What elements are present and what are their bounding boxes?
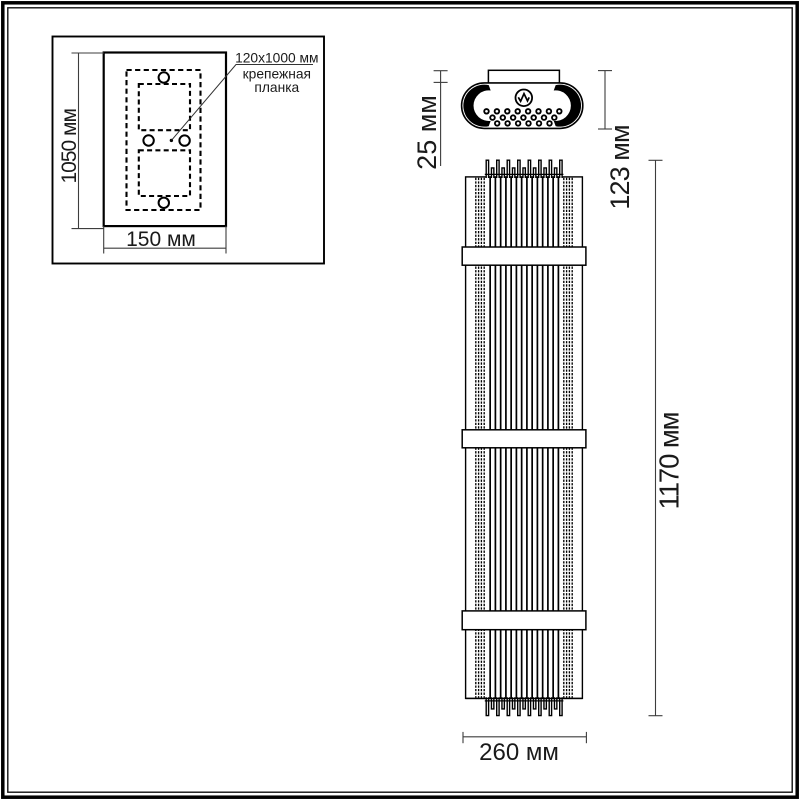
svg-text:планка: планка xyxy=(254,80,299,95)
svg-text:120x1000 мм: 120x1000 мм xyxy=(235,50,318,65)
svg-text:260 мм: 260 мм xyxy=(479,739,559,766)
svg-text:1170 мм: 1170 мм xyxy=(654,412,685,509)
svg-text:123 мм: 123 мм xyxy=(605,125,635,209)
svg-text:25 мм: 25 мм xyxy=(412,95,442,170)
svg-text:1050 мм: 1050 мм xyxy=(58,109,81,183)
svg-text:150 мм: 150 мм xyxy=(126,228,196,251)
